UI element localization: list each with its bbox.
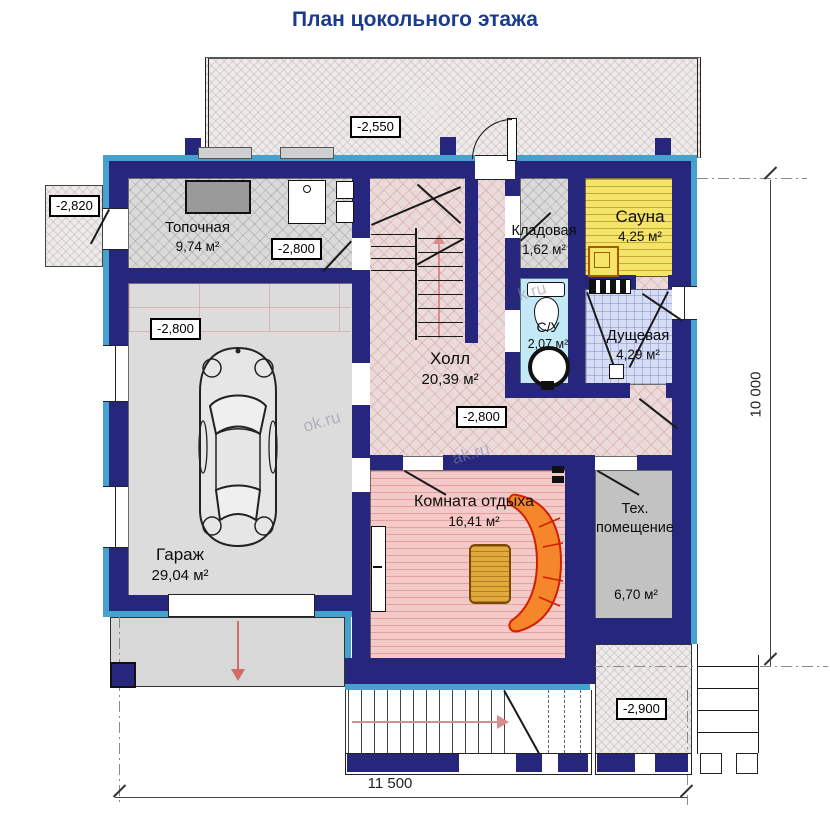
garage-door-opening — [168, 594, 315, 617]
side-step-line — [698, 688, 758, 689]
side-step-edge — [758, 655, 759, 753]
terrace-pillar — [440, 137, 456, 155]
elevation-marker-porch: -2,900 — [616, 698, 667, 720]
room-name: Холл — [395, 348, 505, 370]
room-label-storage: Кладовая 1,62 м² — [496, 222, 592, 258]
room-area: 4,25 м² — [600, 228, 680, 246]
axis-line — [697, 178, 807, 179]
window-sill — [198, 147, 252, 159]
dashed-tread — [548, 690, 549, 753]
room-area: 16,41 м² — [386, 513, 562, 531]
room-name: Кладовая — [496, 222, 592, 241]
dashed-tread — [564, 690, 565, 753]
staircase — [368, 178, 465, 343]
door-opening — [352, 458, 370, 492]
wall — [568, 178, 585, 398]
pier — [110, 662, 136, 688]
stair-line — [371, 186, 461, 225]
wall-device-icon — [552, 476, 564, 483]
car-icon — [186, 342, 290, 552]
axis-line — [119, 617, 120, 805]
side-step-line — [698, 710, 758, 711]
pier — [597, 754, 635, 772]
room-area: 9,74 м² — [135, 238, 260, 256]
sauna-stove-inner — [594, 252, 610, 268]
stair-tread — [418, 238, 463, 239]
room-label-garage: Гараж 29,04 м² — [130, 544, 230, 586]
wall — [128, 268, 352, 283]
heater-dial-icon — [303, 185, 311, 193]
vent-grille-icon — [589, 279, 631, 294]
pier — [700, 753, 722, 774]
stair-tread — [418, 308, 463, 309]
room-area: 2,07 м² — [516, 336, 580, 352]
room-area: 20,39 м² — [395, 370, 505, 390]
boiler-unit-icon — [185, 180, 251, 214]
room-label-hall: Холл 20,39 м² — [395, 348, 505, 390]
elevation-marker-side-entry: -2,820 — [49, 195, 100, 217]
wall — [666, 383, 672, 398]
stair-tread — [371, 270, 415, 271]
cabinet-icon — [371, 526, 386, 612]
stair-tread — [418, 322, 463, 323]
stair-arrow-head — [433, 234, 445, 244]
room-label-shower: Дущевая 4,29 м² — [596, 326, 680, 363]
door-opening — [352, 363, 370, 405]
pier — [558, 754, 588, 772]
stair-tread — [418, 280, 463, 281]
room-area: 4,29 м² — [596, 346, 680, 364]
stair-tread — [418, 336, 463, 337]
wall-device-icon — [552, 466, 564, 473]
table-icon — [469, 544, 511, 604]
floor-plan-canvas: План цокольного этажа -2,550 — [0, 0, 830, 822]
stair-tread — [371, 258, 415, 259]
side-step-line — [698, 732, 758, 733]
room-label-tech: Тех. помещение — [590, 500, 680, 538]
stairs-arrow-head — [497, 715, 509, 729]
room-label-lounge: Комната отдыха 16,41 м² — [386, 492, 562, 530]
room-area: 6,70 м² — [598, 586, 674, 604]
room-area: 29,04 м² — [130, 566, 230, 586]
elevation-marker-hall: -2,800 — [456, 406, 507, 428]
page-title: План цокольного этажа — [215, 8, 615, 32]
wall — [505, 383, 630, 398]
dashed-tread — [580, 690, 581, 753]
dimension-width-label: 11 500 — [290, 775, 490, 792]
room-name: Гараж — [130, 544, 230, 566]
stair-tread — [371, 246, 415, 247]
sink-pedestal-icon — [541, 381, 554, 390]
dimension-height-label: 10 000 — [748, 355, 765, 435]
stair-direction-arrow — [438, 242, 440, 338]
room-name: помещение — [590, 519, 680, 538]
stair-tread — [371, 234, 415, 235]
pier — [655, 754, 688, 772]
side-step-edge — [697, 644, 698, 754]
wall-band — [691, 155, 697, 644]
window-sill — [280, 147, 334, 159]
stair-stringer — [415, 228, 417, 340]
room-label-sauna: Сауна 4,25 м² — [600, 206, 680, 246]
pier — [516, 754, 542, 772]
dimension-line-bottom — [115, 797, 687, 798]
meter-icon — [336, 181, 354, 199]
terrace-pillar — [655, 138, 671, 155]
stair-tread — [418, 266, 463, 267]
room-label-boiler: Топочная 9,74 м² — [135, 218, 260, 255]
wall — [345, 658, 590, 684]
wall — [590, 618, 672, 644]
driveway-arrow-head — [231, 669, 245, 681]
room-area-tech: 6,70 м² — [598, 586, 674, 604]
window — [103, 345, 128, 402]
wall-stair-divider — [465, 178, 478, 343]
wall — [637, 455, 672, 470]
room-area: 1,62 м² — [496, 241, 592, 259]
elevation-marker-terrace: -2,550 — [350, 116, 401, 138]
room-label-wc: С/У 2,07 м² — [516, 318, 580, 352]
wall — [109, 161, 691, 178]
dimension-line-right — [770, 180, 771, 666]
room-name: Дущевая — [596, 326, 680, 346]
side-step-line — [698, 666, 758, 667]
elevation-marker-garage: -2,800 — [150, 318, 201, 340]
driveway-arrow — [237, 621, 239, 671]
room-name: Комната отдыха — [386, 492, 562, 513]
stair-tread — [418, 294, 463, 295]
room-name: С/У — [516, 318, 580, 336]
pier — [347, 754, 459, 772]
room-name: Тех. — [590, 500, 680, 519]
window — [103, 486, 128, 548]
room-name: Сауна — [600, 206, 680, 228]
garage-apron — [110, 617, 345, 687]
room-name: Топочная — [135, 218, 260, 238]
cabinet-shelf-line — [373, 566, 382, 568]
meter-icon — [336, 201, 354, 223]
elevation-marker-boiler: -2,800 — [271, 238, 322, 260]
stairs-direction-arrow — [352, 721, 500, 723]
shower-drain-icon — [609, 364, 624, 379]
pier — [736, 753, 758, 774]
wall — [520, 268, 568, 278]
wall-band — [345, 684, 590, 690]
